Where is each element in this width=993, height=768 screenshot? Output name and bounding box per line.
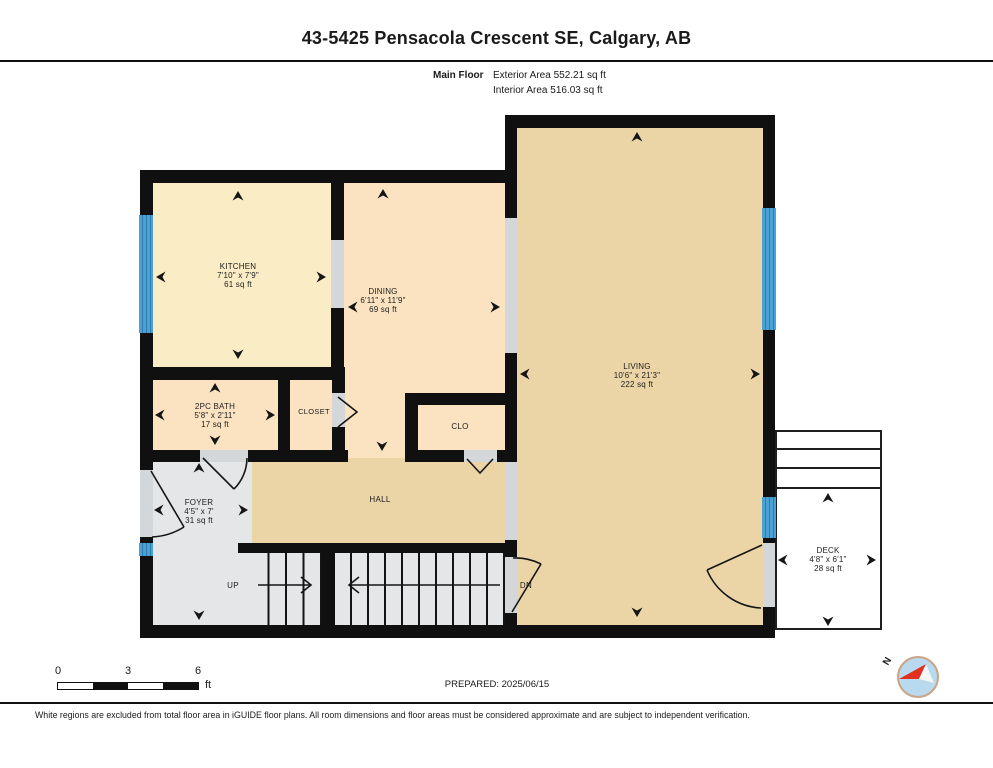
wall-segment [140,625,775,638]
wall-segment [322,543,335,638]
room-area: 17 sq ft [194,420,235,429]
compass-icon [891,652,943,704]
disclaimer-text: White regions are excluded from total fl… [35,710,965,720]
room-dims: 4'5" x 7' [184,507,214,516]
wall-segment [238,543,517,553]
room-label-closet: CLOSET [298,407,330,416]
window [762,208,776,330]
wall-segment [278,380,290,450]
window [762,497,776,538]
deck-step-line [777,487,880,489]
room-deck [775,430,882,630]
prepared-date: PREPARED: 2025/06/15 [445,679,549,690]
room-label-dining: DINING 6'11" x 11'9" 69 sq ft [360,287,405,314]
door-opening [200,450,248,462]
room-label-kitchen: KITCHEN 7'10" x 7'9" 61 sq ft [217,262,259,289]
room-label-foyer: FOYER 4'5" x 7' 31 sq ft [184,498,214,525]
door-opening [505,462,517,540]
room-dims: 5'8" x 2'11" [194,411,235,420]
room-dims: 7'10" x 7'9" [217,271,259,280]
scale-bar-segment [163,683,198,689]
room-name: DINING [360,287,405,296]
room-name: LIVING [614,362,660,371]
door-opening [332,393,345,427]
wall-segment [140,367,345,380]
stairs-up-label: UP [227,581,239,590]
window [139,215,153,333]
header-divider [0,60,993,62]
room-area: 222 sq ft [614,380,660,389]
exterior-area-label: Exterior Area 552.21 sq ft [493,69,606,83]
scale-bar-segment [58,683,93,689]
wall-segment [140,170,517,183]
stairs-down [335,553,505,625]
room-label-living: LIVING 10'6" x 21'3" 222 sq ft [614,362,660,389]
scale-bar-segment [128,683,163,689]
window [139,543,153,556]
floorplan-page: 43-5425 Pensacola Crescent SE, Calgary, … [0,0,993,768]
wall-segment [505,115,517,175]
room-label-hall: HALL [369,495,390,504]
room-area: 69 sq ft [360,305,405,314]
room-dims: 6'11" x 11'9" [360,296,405,305]
scale-unit-label: ft [205,679,211,691]
room-name: 2PC BATH [194,402,235,411]
room-label-bath: 2PC BATH 5'8" x 2'11" 17 sq ft [194,402,235,429]
scale-tick-3: 3 [121,665,135,677]
deck-step-line [777,467,880,469]
room-area: 31 sq ft [184,516,214,525]
room-dims: 10'6" x 21'3" [614,371,660,380]
room-label-clo: CLO [451,422,468,431]
door-opening [464,450,497,462]
door-opening [763,543,775,607]
room-area: 28 sq ft [809,564,846,573]
wall-segment [505,613,517,625]
scale-bar-segment [93,683,128,689]
page-title: 43-5425 Pensacola Crescent SE, Calgary, … [0,28,993,49]
scale-tick-6: 6 [191,665,205,677]
wall-segment [505,353,517,462]
footer-divider [0,702,993,704]
room-area: 61 sq ft [217,280,259,289]
wall-segment [405,393,517,405]
interior-area-label: Interior Area 516.03 sq ft [493,84,603,98]
room-name: DECK [809,546,846,555]
wall-segment [505,115,775,128]
scale-tick-0: 0 [51,665,65,677]
stairs-up [252,553,322,625]
door-opening [140,470,153,537]
door-opening [505,218,517,353]
room-dims: 4'8" x 6'1" [809,555,846,564]
room-name: KITCHEN [217,262,259,271]
room-name: FOYER [184,498,214,507]
wall-segment [505,183,517,218]
scale-bar [57,682,199,690]
door-opening [331,240,344,308]
floor-label: Main Floor [433,69,484,83]
stairs-dn-label: DN [520,581,532,590]
deck-step-line [777,448,880,450]
wall-segment [405,450,517,462]
room-label-deck: DECK 4'8" x 6'1" 28 sq ft [809,546,846,573]
door-opening [505,557,517,613]
